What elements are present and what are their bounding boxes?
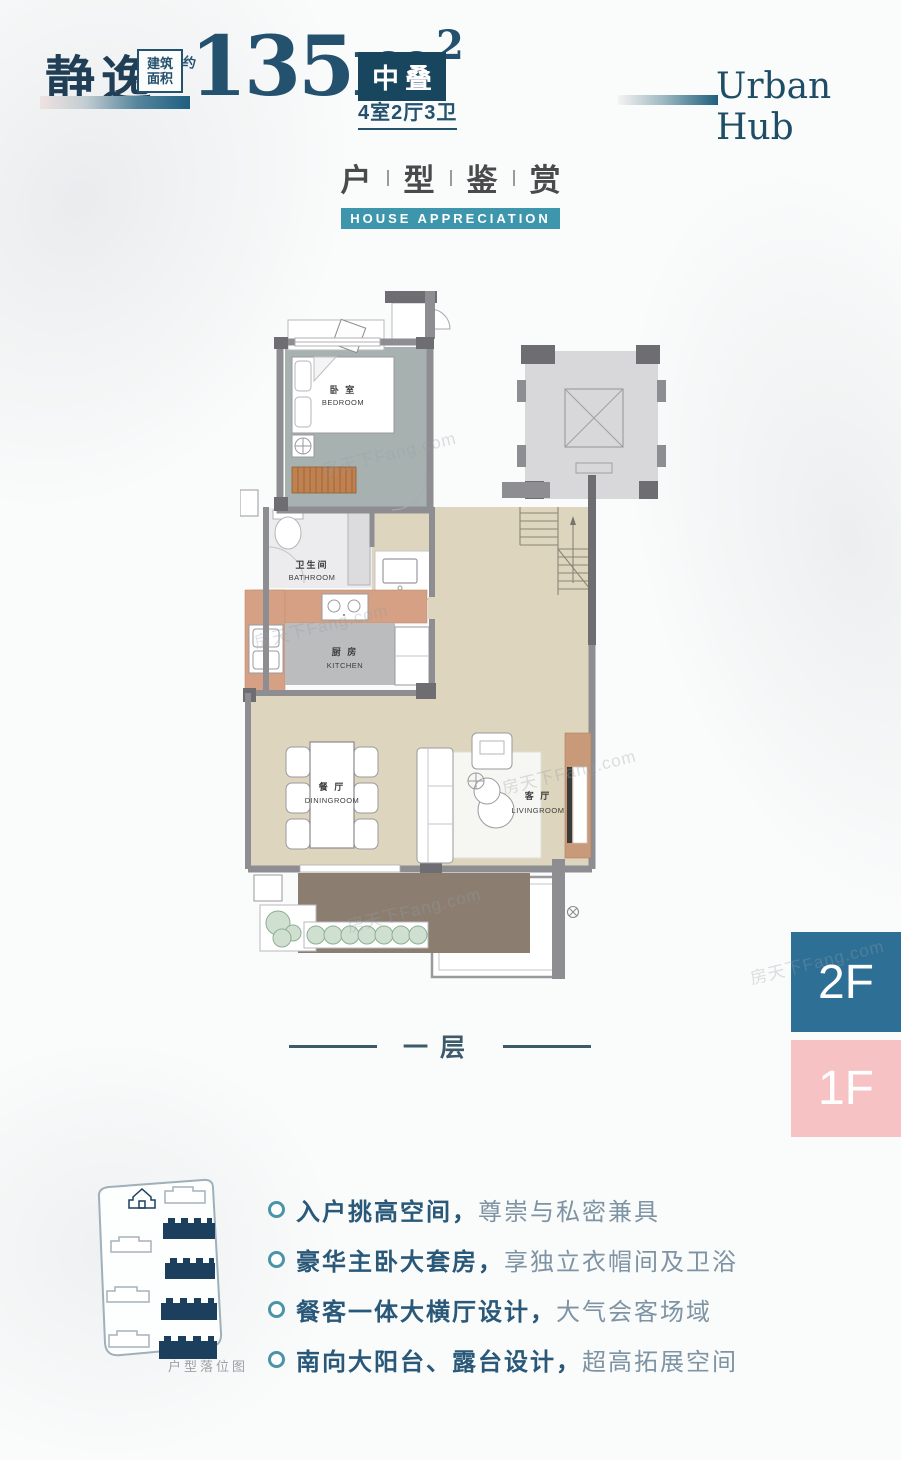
siteplan-svg [85,1175,245,1370]
floor-1f-button[interactable]: 1F [791,1040,901,1137]
bed [292,357,394,433]
feature-list: 入户挑高空间， 尊崇与私密兼具 豪华主卧大套房， 享独立衣帽间及卫浴 餐客一体大… [268,1192,738,1377]
siteplan-label: 户型落位图 [168,1356,248,1375]
feature-light-text: 享独立衣帽间及卫浴 [504,1242,738,1277]
armchair [472,733,512,769]
name-underline-gradient [40,96,190,109]
caption-line-left [289,1045,377,1048]
balcony [254,873,530,953]
feature-light-text: 超高拓展空间 [582,1342,738,1377]
title-divider [513,170,515,186]
caption-text: 一层 [403,1028,477,1064]
bullet-ring-icon [268,1351,285,1368]
floorplan: 卧 室 BEDROOM 卫生间 BATHROOM 厨 房 KITCHEN 餐 厅… [240,285,670,1005]
section-subtitle: HOUSE APPRECIATION [341,208,560,229]
feature-item: 南向大阳台、露台设计， 超高拓展空间 [268,1342,738,1377]
title-divider [387,170,389,186]
section-title: 户 型 鉴 赏 [341,155,561,200]
bathroom-label-zh: 卫生间 [295,559,328,570]
title-divider [450,170,452,186]
area-label-top: 建筑 [147,56,173,71]
dining-table [310,742,354,848]
bullet-ring-icon [268,1301,285,1318]
living-label-zh: 客 厅 [524,790,552,801]
area-label-bottom: 面积 [147,71,173,86]
floor-2f-button[interactable]: 2F [791,932,901,1032]
caption-line-right [503,1045,591,1048]
feature-bold-text: 入户挑高空间， [296,1192,478,1227]
bedside-table [292,435,314,457]
feature-item: 豪华主卧大套房， 享独立衣帽间及卫浴 [268,1242,738,1277]
feature-light-text: 大气会客场域 [556,1292,712,1327]
feature-bold-text: 南向大阳台、露台设计， [296,1342,582,1377]
bullet-ring-icon [268,1251,285,1268]
feature-bold-text: 餐客一体大横厅设计， [296,1292,556,1327]
floor-caption: 一层 [240,1028,640,1064]
kitchen [245,590,429,693]
wardrobe [292,467,356,493]
bedroom-balcony [288,319,384,352]
bullet-ring-icon [268,1201,285,1218]
brand-logo: Urban Hub [716,66,901,148]
section-title-char: 赏 [530,155,561,200]
brand-line-gradient [618,95,718,105]
kitchen-label-en: KITCHEN [327,661,363,670]
drain-symbol [568,907,579,918]
bathroom-label-en: BATHROOM [289,573,336,582]
type-badge: 中叠 [358,52,446,101]
floorplan-svg: 卧 室 BEDROOM 卫生间 BATHROOM 厨 房 KITCHEN 餐 厅… [240,285,670,1005]
feature-item: 餐客一体大横厅设计， 大气会客场域 [268,1292,738,1327]
stove [322,594,368,620]
section-title-char: 鉴 [467,155,498,200]
entry-porch [392,303,450,340]
siteplan [85,1175,245,1375]
bedroom-label-en: BEDROOM [322,398,364,407]
living-set [417,733,591,863]
fridge [395,627,429,685]
section-title-char: 户 [341,155,372,200]
area-label-box: 建筑 面积 [137,49,183,93]
tv-cabinet [565,733,591,858]
section-header: 户 型 鉴 赏 HOUSE APPRECIATION [0,155,901,229]
sofa [417,748,453,863]
section-title-char: 型 [404,155,435,200]
feature-bold-text: 豪华主卧大套房， [296,1242,504,1277]
dining-label-zh: 餐 厅 [318,781,346,792]
dining-label-en: DININGROOM [305,796,360,805]
feature-light-text: 尊崇与私密兼具 [478,1192,660,1227]
rooms-summary: 4室2厅3卫 [358,96,457,130]
feature-item: 入户挑高空间， 尊崇与私密兼具 [268,1192,738,1227]
bedroom-label-zh: 卧 室 [330,384,357,395]
living-label-en: LIVINGROOM [512,806,565,815]
kitchen-label-zh: 厨 房 [332,646,359,657]
